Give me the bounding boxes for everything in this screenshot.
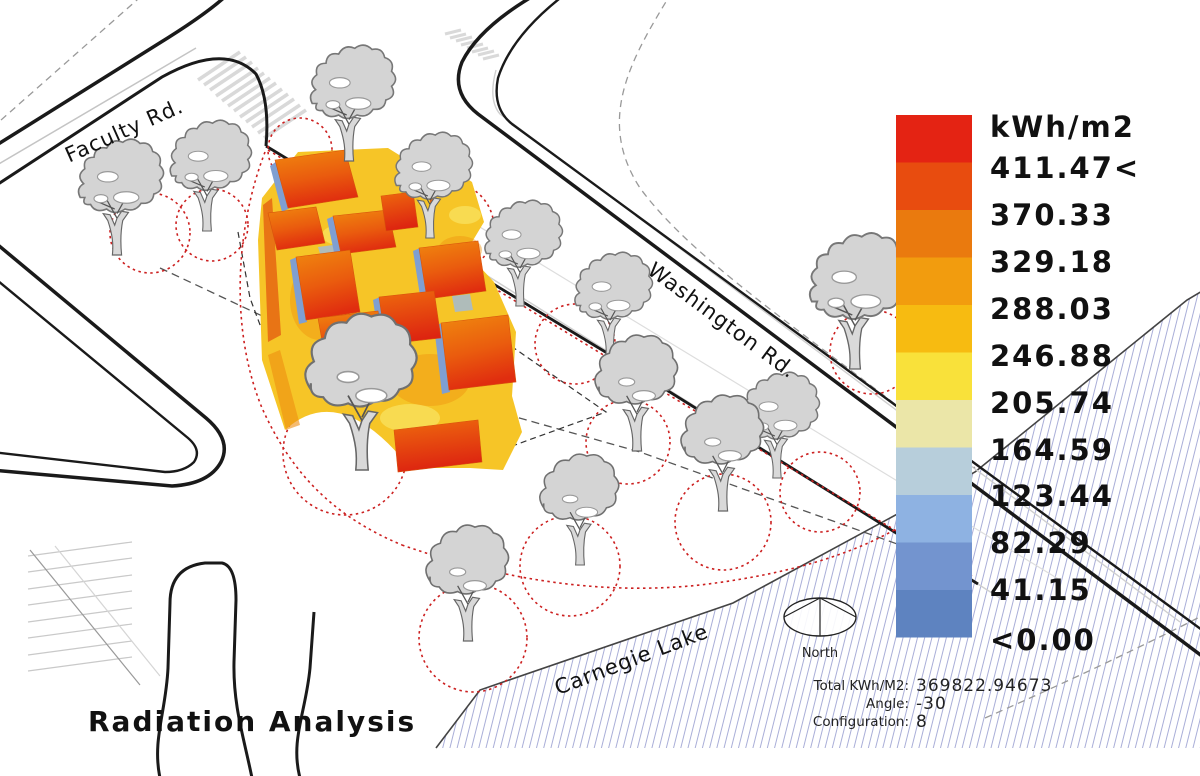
legend-swatch (896, 400, 972, 448)
legend-entry: 370.33 (990, 198, 1114, 232)
legend-entry: 246.88 (990, 339, 1114, 373)
legend-entry: <0.00 (990, 623, 1096, 657)
configuration-label: Configuration: (813, 714, 909, 730)
legend-swatch (896, 163, 972, 211)
legend-swatch (896, 353, 972, 401)
legend-entry: 164.59 (990, 433, 1114, 467)
angle-value: -30 (916, 694, 947, 714)
hairpin-road-edge (0, 276, 197, 472)
legend-entry: 411.47< (990, 151, 1140, 185)
parking-grid (28, 542, 160, 685)
legend-entry: 329.18 (990, 245, 1114, 279)
tree (540, 454, 619, 565)
legend-entry: 82.29 (990, 526, 1092, 560)
legend-entry: 288.03 (990, 292, 1114, 326)
total-kwh-label: Total KWh/M2: (813, 678, 909, 694)
legend-unit-label: kWh/m2 (990, 110, 1135, 144)
road-edge (297, 612, 314, 776)
total-kwh-value: 369822.94673 (916, 676, 1052, 696)
legend-entry: 205.74 (990, 386, 1114, 420)
legend-swatch (896, 115, 972, 163)
site-plan-svg: Faculty Rd. Washington Rd. Carnegie Lake… (0, 0, 1200, 776)
legend-swatch (896, 448, 972, 496)
legend-swatch (896, 305, 972, 353)
legend-swatch (896, 590, 972, 638)
legend-entry: 123.44 (990, 479, 1114, 513)
angle-label: Angle: (866, 696, 909, 712)
tree (681, 395, 764, 511)
tree (426, 525, 509, 641)
hairpin-road-edge (0, 240, 224, 486)
legend-entry: 41.15 (990, 573, 1092, 607)
tree (810, 233, 910, 369)
tree (311, 45, 396, 161)
north-label: North (802, 646, 838, 661)
radiation-analysis-canvas: Faculty Rd. Washington Rd. Carnegie Lake… (0, 0, 1200, 776)
legend-swatch (896, 495, 972, 543)
configuration-value: 8 (916, 712, 928, 732)
legend-swatch (896, 543, 972, 591)
loop-road-edge (158, 563, 252, 776)
legend-swatch (896, 258, 972, 306)
page-title: Radiation Analysis (88, 705, 416, 738)
legend-swatch (896, 210, 972, 258)
radiation-site (258, 148, 522, 472)
tree (170, 120, 251, 231)
